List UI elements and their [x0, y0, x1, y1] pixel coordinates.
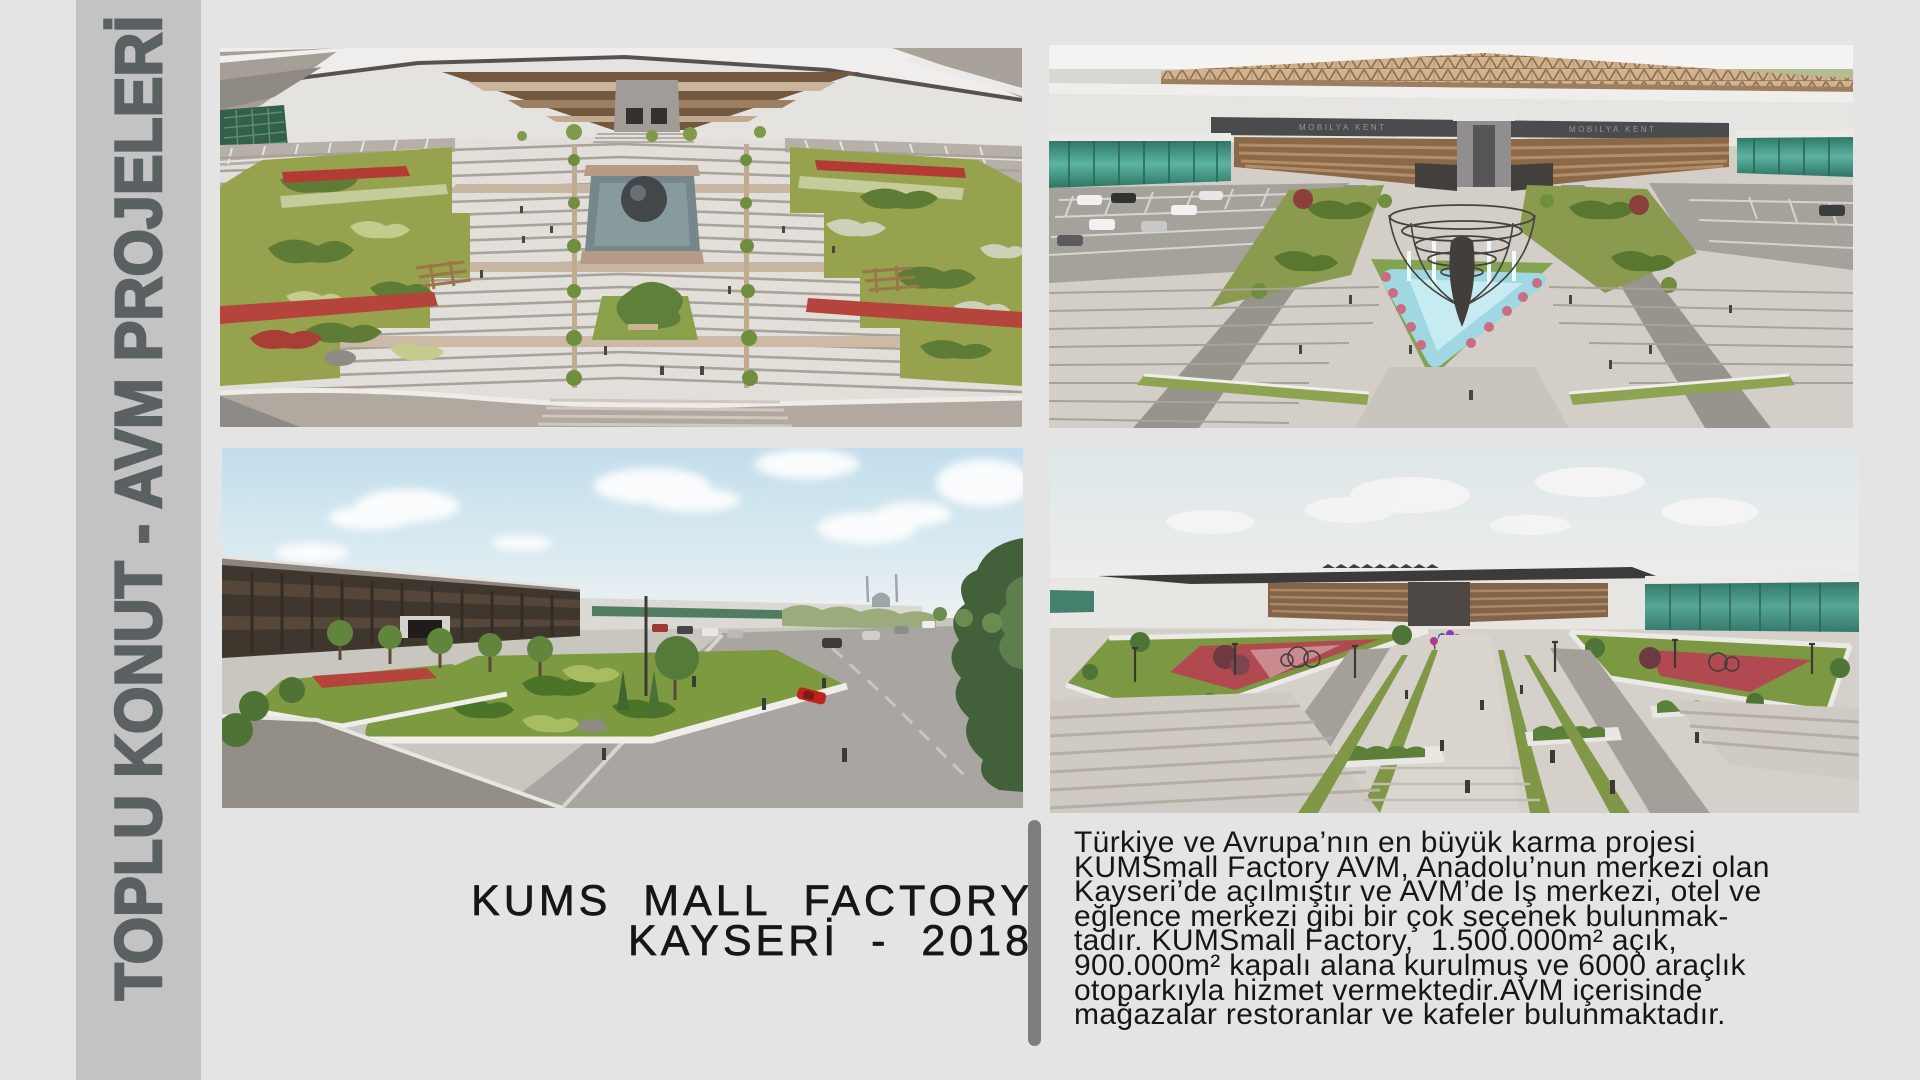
svg-text:MOBILYA KENT: MOBILYA KENT: [1569, 125, 1657, 134]
svg-text:MOBILYA KENT: MOBILYA KENT: [1299, 123, 1387, 132]
